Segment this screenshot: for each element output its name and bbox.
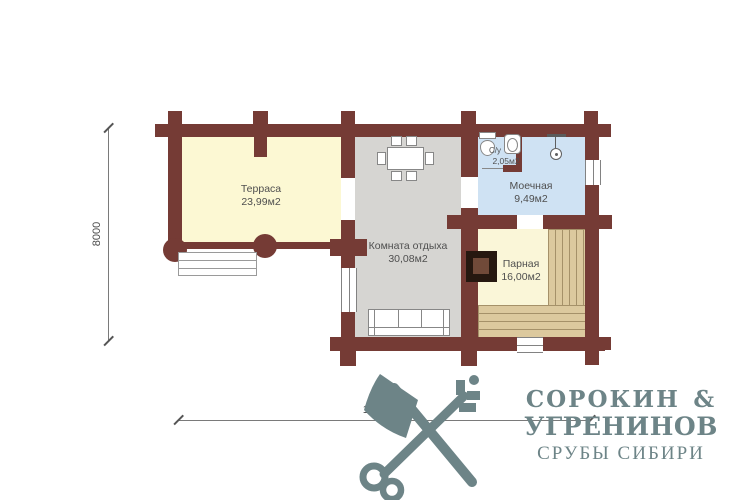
room-name: Парная bbox=[503, 258, 540, 270]
wc-partition bbox=[503, 165, 522, 172]
chair bbox=[391, 171, 402, 181]
window-lounge-west bbox=[341, 268, 357, 312]
log-end bbox=[340, 351, 356, 366]
wall-wash-sauna bbox=[447, 215, 517, 229]
room-name: Комната отдыха bbox=[369, 240, 448, 252]
chair bbox=[391, 136, 402, 146]
sofa-armrest bbox=[443, 310, 444, 335]
log-end bbox=[599, 124, 611, 137]
log-end bbox=[585, 351, 599, 365]
brand-tagline: СРУБЫ СИБИРИ bbox=[508, 442, 734, 467]
sofa-seat-edge bbox=[369, 327, 449, 328]
brand-name-line1: СОРОКИН & bbox=[508, 388, 734, 411]
label-wc-area: 2,05м2 bbox=[487, 156, 525, 166]
wall-center bbox=[461, 137, 478, 177]
wall-east bbox=[585, 137, 599, 160]
logo-mark bbox=[352, 372, 510, 500]
room-area: 9,49м2 bbox=[471, 193, 591, 206]
sink-basin bbox=[507, 138, 518, 152]
room-area: 30,08м2 bbox=[348, 253, 468, 266]
room-area: 16,00м2 bbox=[461, 271, 581, 284]
window-frame bbox=[517, 345, 543, 346]
room-name: С/у bbox=[489, 146, 501, 155]
log-end bbox=[461, 351, 477, 366]
step-tread bbox=[179, 260, 256, 261]
sofa-armrest bbox=[374, 310, 375, 335]
sofa-cushion-divider bbox=[398, 310, 399, 327]
shower-riser bbox=[555, 137, 556, 148]
terrace-steps bbox=[178, 252, 257, 276]
log-end bbox=[584, 111, 598, 124]
label-terrace: Терраса 23,99м2 bbox=[201, 183, 321, 208]
shower-bar bbox=[547, 134, 566, 137]
room-area: 2,05м2 bbox=[492, 156, 519, 166]
sofa bbox=[368, 309, 450, 336]
log-end bbox=[253, 111, 268, 124]
log-end bbox=[254, 137, 267, 157]
log-end bbox=[341, 111, 355, 124]
window-frame bbox=[349, 268, 350, 312]
chair bbox=[406, 171, 417, 181]
room-name: Моечная bbox=[510, 180, 553, 192]
wall-south bbox=[543, 337, 605, 351]
log-end bbox=[461, 111, 476, 124]
room-area: 23,99м2 bbox=[201, 196, 321, 209]
brand-name-line2: УГРЕНИНОВ bbox=[508, 411, 734, 442]
dimension-line-vertical bbox=[108, 128, 109, 341]
sauna-bench-bottom bbox=[478, 305, 587, 339]
wall-south bbox=[330, 337, 517, 351]
chair bbox=[425, 152, 434, 165]
step-tread bbox=[179, 268, 256, 269]
wall-north bbox=[155, 124, 604, 137]
shower-icon bbox=[550, 148, 562, 160]
label-lounge: Комната отдыха 30,08м2 bbox=[348, 240, 468, 265]
wall-terrace-lounge bbox=[341, 137, 355, 178]
chair bbox=[377, 152, 386, 165]
room-name: Терраса bbox=[241, 183, 281, 195]
window-sauna-south bbox=[517, 337, 543, 353]
dimension-label-vertical: 8000 bbox=[91, 214, 107, 254]
shower-dot bbox=[555, 153, 558, 156]
label-wc: С/у bbox=[482, 146, 508, 155]
sofa-cushion-divider bbox=[421, 310, 422, 327]
terrace-railing bbox=[175, 242, 335, 249]
window-frame bbox=[593, 160, 594, 185]
toilet-icon bbox=[479, 132, 496, 139]
label-washroom: Моечная 9,49м2 bbox=[471, 180, 591, 205]
label-sauna: Парная 16,00м2 bbox=[461, 258, 581, 283]
wc-door bbox=[482, 168, 503, 169]
floor-plan-canvas: 8000 15500 bbox=[0, 0, 753, 502]
wall-terrace-lounge bbox=[341, 312, 355, 338]
chair bbox=[406, 136, 417, 146]
logo-text: СОРОКИН & УГРЕНИНОВ СРУБЫ СИБИРИ bbox=[508, 388, 734, 467]
log-end bbox=[599, 216, 611, 229]
log-end bbox=[168, 111, 182, 124]
wall-east bbox=[585, 185, 599, 351]
wall-west bbox=[168, 124, 182, 246]
dining-table bbox=[387, 147, 424, 170]
